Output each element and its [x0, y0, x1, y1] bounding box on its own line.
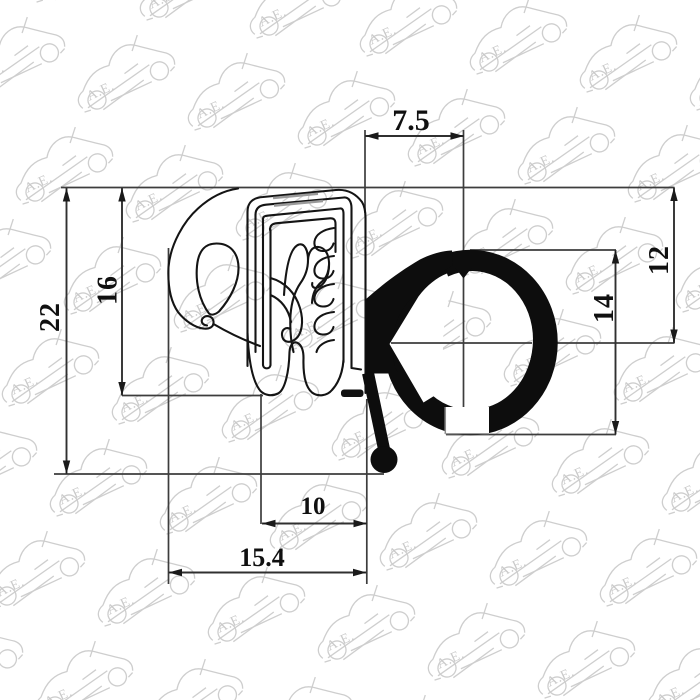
svg-text:16: 16 [93, 275, 124, 305]
svg-text:10: 10 [301, 493, 326, 520]
svg-text:12: 12 [644, 245, 675, 275]
svg-text:7.5: 7.5 [392, 104, 430, 137]
svg-text:14: 14 [589, 293, 620, 323]
svg-text:15.4: 15.4 [239, 543, 285, 572]
svg-text:22: 22 [35, 302, 66, 332]
